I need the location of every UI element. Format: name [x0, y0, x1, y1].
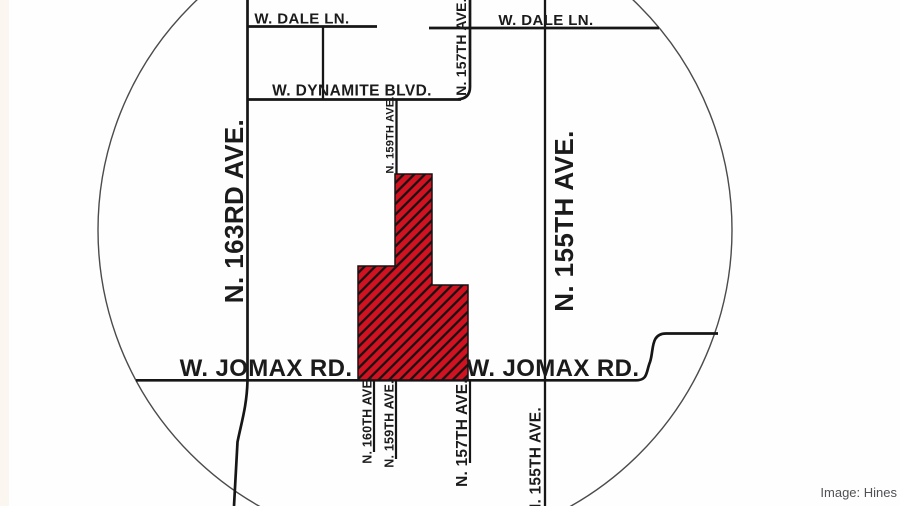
label-dale-ln-east: W. DALE LN.	[498, 12, 593, 29]
image-credit: Image: Hines	[820, 485, 897, 500]
label-jomax-rd-west: W. JOMAX RD.	[180, 355, 353, 382]
label-163rd-ave: N. 163RD AVE.	[219, 119, 249, 303]
label-160th-ave-south: N. 160TH AVE.	[361, 376, 375, 463]
site-parcel-hatched	[358, 174, 468, 380]
label-dynamite-blvd: W. DYNAMITE BLVD.	[272, 83, 432, 100]
label-159th-ave-south: N. 159TH AVE.	[383, 380, 397, 467]
scan-edge-artifact	[0, 0, 9, 506]
map-svg: W. DALE LN. W. DALE LN. W. DYNAMITE BLVD…	[0, 0, 900, 506]
label-jomax-rd-east: W. JOMAX RD.	[467, 355, 640, 382]
label-155th-ave: N. 155TH AVE.	[549, 130, 579, 311]
site-map-screenshot: W. DALE LN. W. DALE LN. W. DYNAMITE BLVD…	[0, 0, 900, 506]
label-157th-ave-south: N. 157TH AVE.	[454, 379, 471, 487]
label-159th-ave-north: N. 159TH AVE.	[385, 96, 397, 173]
label-155th-ave-south: N. 155TH AVE.	[528, 407, 545, 506]
label-dale-ln-west: W. DALE LN.	[254, 11, 349, 28]
label-157th-ave-north: N. 157TH AVE.	[453, 0, 469, 96]
